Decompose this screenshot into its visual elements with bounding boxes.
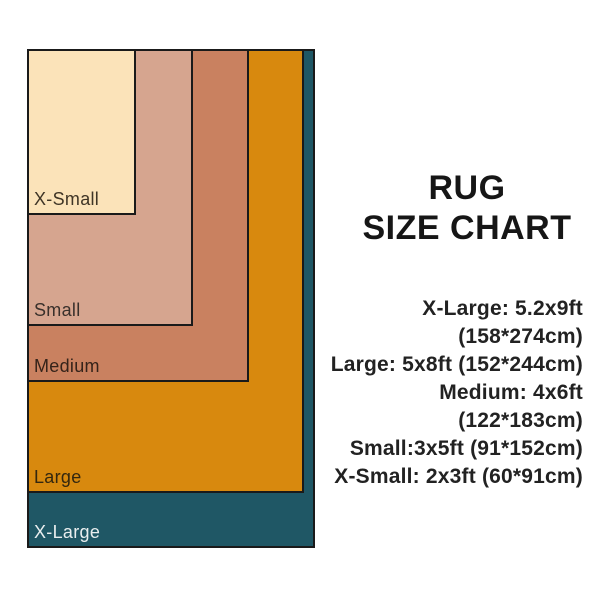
rug-rect-x-small: X-Small (27, 49, 136, 215)
page-title-line1: RUG (334, 168, 600, 208)
size-spec-item: Small:3x5ft (91*152cm) (330, 435, 583, 463)
size-spec-item: X-Large: 5.2x9ft (158*274cm) (330, 295, 583, 351)
size-spec-item: Large: 5x8ft (152*244cm) (330, 351, 583, 379)
size-spec-item: Medium: 4x6ft (122*183cm) (330, 379, 583, 435)
size-spec-item: X-Small: 2x3ft (60*91cm) (330, 463, 583, 491)
page-title: RUG SIZE CHART (334, 168, 600, 248)
rug-size-label-x-large: X-Large (34, 523, 100, 543)
rug-size-label-medium: Medium (34, 357, 100, 377)
rug-size-label-small: Small (34, 301, 81, 321)
size-spec-list: X-Large: 5.2x9ft (158*274cm)Large: 5x8ft… (330, 295, 583, 491)
rug-size-label-x-small: X-Small (34, 190, 99, 210)
page-title-line2: SIZE CHART (334, 208, 600, 248)
rug-size-label-large: Large (34, 468, 82, 488)
rug-size-chart-page: X-LargeLargeMediumSmallX-Small RUG SIZE … (0, 0, 600, 600)
